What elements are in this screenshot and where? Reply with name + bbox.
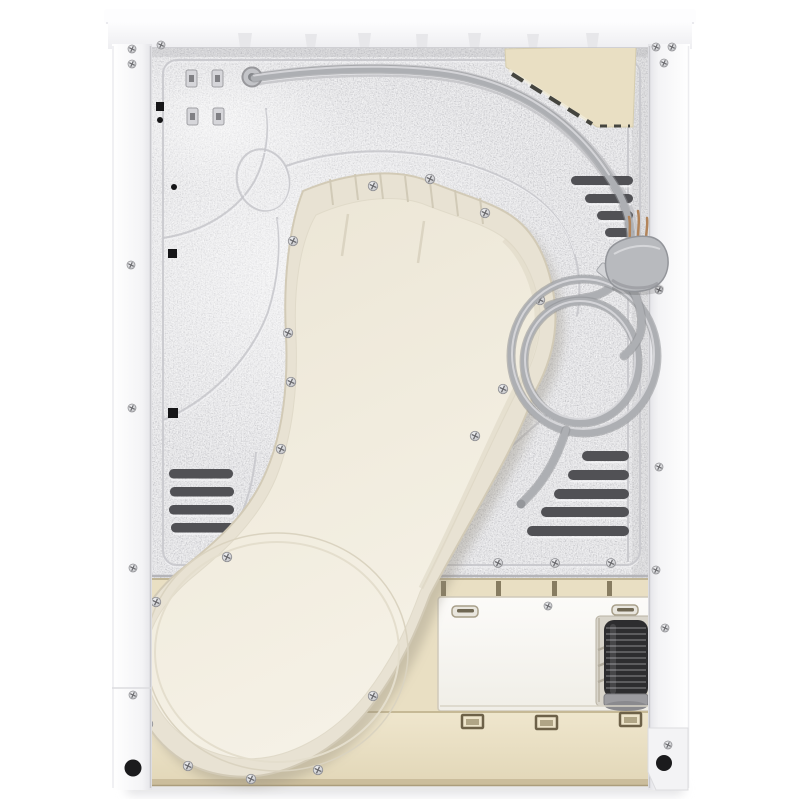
screw bbox=[652, 566, 660, 574]
screw bbox=[551, 559, 560, 568]
screw bbox=[128, 404, 136, 412]
screw bbox=[494, 559, 503, 568]
screw bbox=[368, 691, 378, 701]
screw bbox=[498, 384, 508, 394]
cable-clip bbox=[186, 70, 197, 87]
vent-louver bbox=[527, 526, 629, 538]
screw bbox=[222, 552, 232, 562]
right-frame bbox=[648, 43, 690, 790]
screw bbox=[128, 60, 136, 68]
screw bbox=[480, 208, 490, 218]
vent-louver bbox=[169, 469, 233, 480]
vent-louver bbox=[554, 489, 629, 501]
left-foot bbox=[125, 760, 142, 777]
screw bbox=[368, 181, 378, 191]
screw bbox=[129, 691, 137, 699]
vent-louver bbox=[571, 176, 633, 187]
dryer-rear-svg bbox=[0, 0, 800, 800]
vent-louver bbox=[541, 507, 629, 519]
screw bbox=[425, 174, 435, 184]
right-foot bbox=[656, 755, 672, 771]
screw bbox=[246, 774, 256, 784]
access-panel bbox=[438, 597, 658, 711]
vent-louver bbox=[170, 487, 234, 498]
screw bbox=[288, 236, 298, 246]
screw bbox=[276, 444, 286, 454]
screw bbox=[660, 59, 668, 67]
vent-louver bbox=[169, 505, 234, 516]
screw bbox=[283, 328, 293, 338]
screw bbox=[470, 431, 480, 441]
screw bbox=[607, 559, 616, 568]
screw bbox=[128, 45, 136, 53]
vent-louver bbox=[582, 451, 629, 463]
screw bbox=[183, 761, 193, 771]
screw bbox=[652, 43, 660, 51]
screw bbox=[664, 741, 672, 749]
vent-louver bbox=[568, 470, 629, 482]
top-lid-lip bbox=[104, 9, 696, 24]
screw bbox=[151, 597, 161, 607]
screw bbox=[655, 463, 663, 471]
cable-clip bbox=[212, 70, 223, 87]
dryer-rear-photo bbox=[0, 0, 800, 800]
screw bbox=[544, 602, 552, 610]
panel-handle-left bbox=[452, 606, 478, 617]
exhaust-hose bbox=[604, 620, 648, 711]
screw bbox=[127, 261, 135, 269]
screw bbox=[129, 564, 137, 572]
hose-pocket bbox=[596, 616, 654, 711]
cable-clip bbox=[187, 108, 198, 125]
screw bbox=[286, 377, 296, 387]
cable-clip bbox=[213, 108, 224, 125]
panel-handle-right bbox=[612, 605, 638, 615]
top-band bbox=[108, 22, 692, 49]
screw bbox=[157, 41, 165, 49]
cord-tail-end bbox=[517, 500, 526, 509]
screw bbox=[313, 765, 323, 775]
screw bbox=[661, 624, 669, 632]
top-worktop bbox=[104, 9, 696, 49]
screw bbox=[668, 43, 676, 51]
